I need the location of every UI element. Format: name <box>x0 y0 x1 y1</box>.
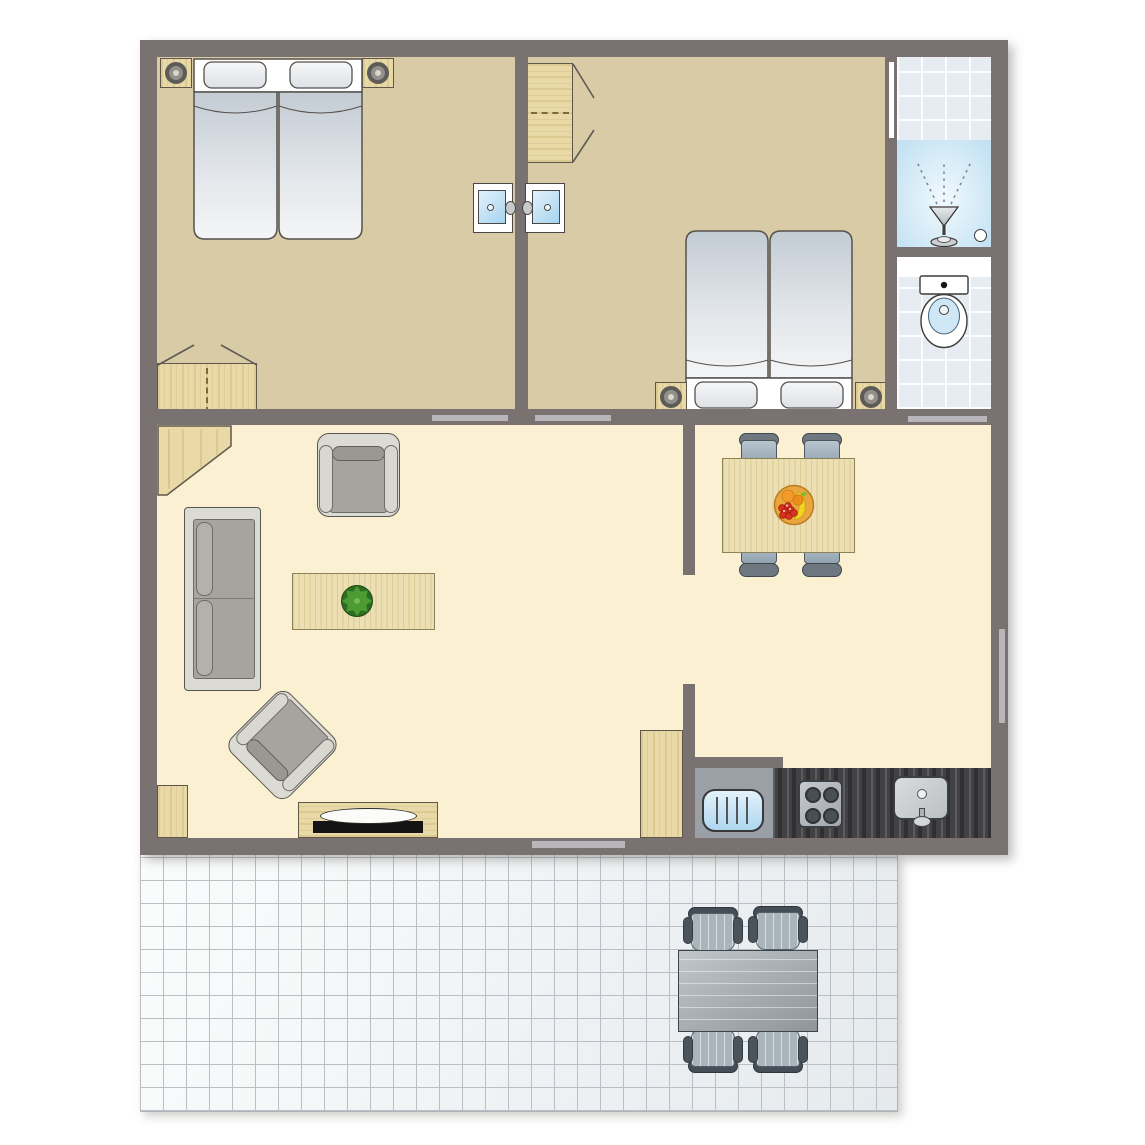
wall-right <box>991 40 1008 855</box>
sliding-door-terrace <box>532 841 625 848</box>
door-bedroom-1 <box>432 415 508 421</box>
shower-icon <box>903 158 985 250</box>
wardrobe-rail <box>531 112 569 114</box>
toilet-icon <box>915 272 973 354</box>
faucet-base-icon <box>913 816 931 827</box>
window-dining <box>999 629 1005 723</box>
wardrobe-door-swing <box>571 61 597 165</box>
lamp-icon <box>165 62 187 84</box>
tall-cabinet <box>640 730 683 838</box>
wardrobe-rail <box>206 368 208 413</box>
side-cabinet <box>157 785 188 838</box>
double-bed <box>193 58 363 240</box>
corner-cabinet <box>157 425 233 497</box>
tv-screen-icon <box>320 808 417 824</box>
wall-left <box>140 40 157 855</box>
dishwasher-icon <box>702 789 764 832</box>
wall-living-dining-upper <box>683 425 695 575</box>
wall-bedroom-divider <box>515 57 528 409</box>
door-wc <box>908 416 987 422</box>
wall-shower-wc <box>897 247 991 257</box>
lamp-icon <box>660 386 682 408</box>
wardrobe-door-swing <box>155 338 259 366</box>
floor-plan <box>0 0 1145 1145</box>
plant-icon <box>340 584 374 618</box>
wall-kitchen-niche <box>683 757 783 768</box>
lamp-icon <box>367 62 389 84</box>
stove-icon <box>798 780 843 828</box>
wall-top <box>140 40 1008 57</box>
door-bedroom-2 <box>535 415 611 421</box>
lamp-icon <box>860 386 882 408</box>
door-shower-room <box>889 62 894 138</box>
patio-table <box>678 950 818 1032</box>
double-bed <box>685 228 853 412</box>
fruit-bowl-icon <box>773 484 815 526</box>
shower-drain-icon <box>974 229 987 242</box>
